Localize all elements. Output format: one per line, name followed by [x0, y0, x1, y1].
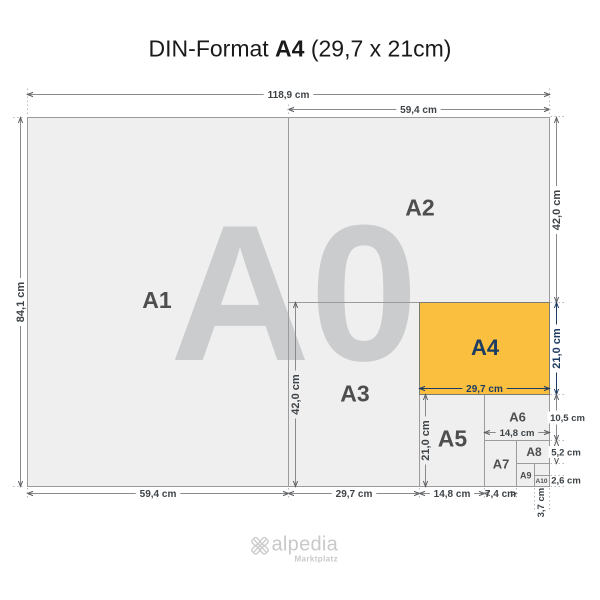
- svg-text:A5: A5: [438, 426, 468, 452]
- svg-text:2,6 cm: 2,6 cm: [551, 476, 581, 487]
- svg-text:A1: A1: [142, 287, 172, 313]
- svg-text:A9: A9: [520, 470, 532, 480]
- svg-text:42,0 cm: 42,0 cm: [290, 374, 302, 415]
- svg-text:A7: A7: [493, 457, 510, 472]
- svg-text:59,4 cm: 59,4 cm: [400, 105, 437, 116]
- svg-text:A0: A0: [170, 185, 418, 402]
- svg-text:A6: A6: [509, 410, 526, 425]
- svg-text:21,0 cm: 21,0 cm: [551, 328, 563, 369]
- svg-text:A4: A4: [471, 335, 500, 360]
- svg-text:alpedia: alpedia: [272, 534, 339, 556]
- svg-text:59,4 cm: 59,4 cm: [140, 489, 177, 500]
- svg-text:DIN-Format A4 (29,7 x 21cm): DIN-Format A4 (29,7 x 21cm): [149, 36, 452, 62]
- svg-text:Marktplatz: Marktplatz: [294, 555, 338, 564]
- svg-text:A8: A8: [526, 445, 542, 459]
- svg-text:118,9 cm: 118,9 cm: [268, 90, 310, 101]
- svg-text:7,4 cm: 7,4 cm: [485, 489, 516, 500]
- svg-text:14,8 cm: 14,8 cm: [434, 489, 471, 500]
- svg-text:A3: A3: [340, 381, 369, 407]
- svg-text:14,8 cm: 14,8 cm: [500, 428, 535, 439]
- svg-text:42,0 cm: 42,0 cm: [551, 190, 563, 231]
- svg-text:A10: A10: [536, 478, 548, 485]
- svg-text:5,2 cm: 5,2 cm: [551, 448, 581, 459]
- svg-text:21,0 cm: 21,0 cm: [420, 420, 432, 461]
- svg-text:10,5 cm: 10,5 cm: [550, 413, 585, 424]
- svg-text:84,1 cm: 84,1 cm: [15, 282, 27, 323]
- svg-text:29,7 cm: 29,7 cm: [336, 489, 373, 500]
- svg-text:A2: A2: [405, 195, 434, 221]
- svg-text:29,7 cm: 29,7 cm: [466, 384, 503, 395]
- svg-text:3,7 cm: 3,7 cm: [536, 488, 547, 518]
